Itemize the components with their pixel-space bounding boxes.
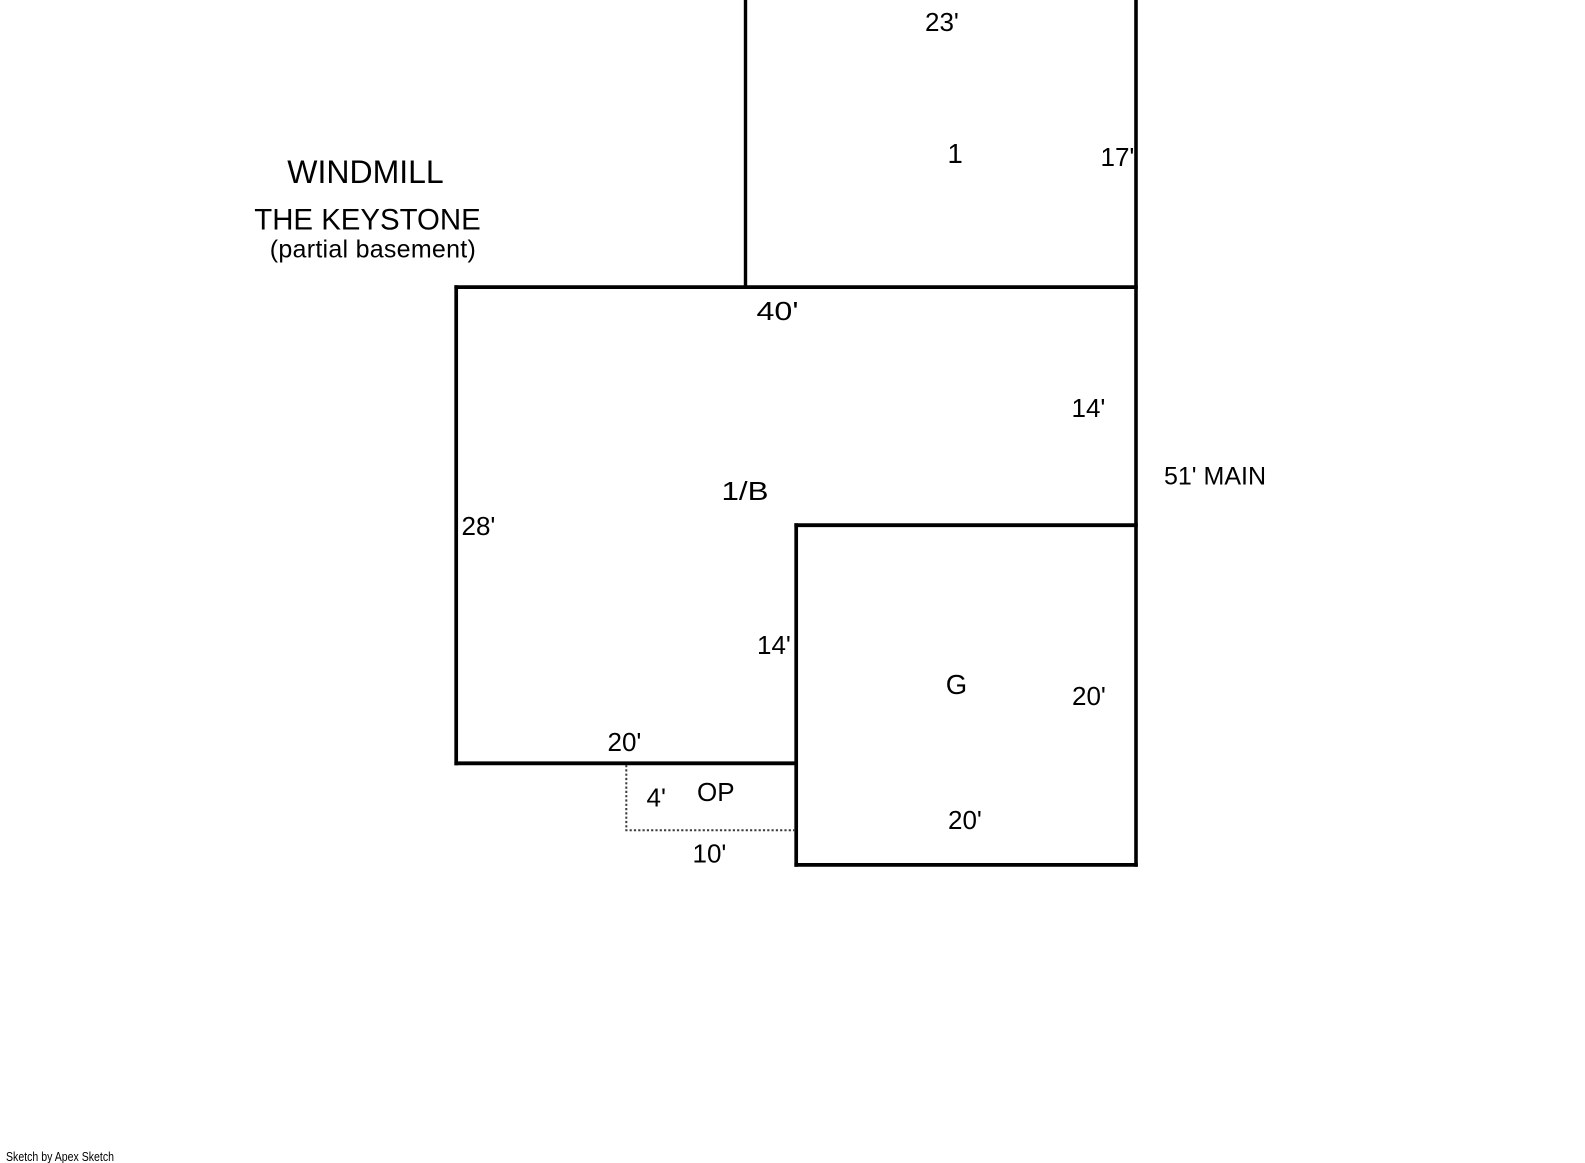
svg-text:20': 20' [948, 805, 982, 835]
svg-text:20': 20' [608, 727, 642, 757]
svg-text:17': 17' [1101, 142, 1135, 172]
svg-text:40': 40' [757, 296, 799, 326]
svg-text:14': 14' [757, 630, 791, 660]
svg-text:28': 28' [462, 511, 496, 541]
svg-text:OP: OP [697, 777, 735, 807]
svg-text:4': 4' [647, 783, 666, 813]
svg-text:1: 1 [948, 138, 963, 169]
svg-text:10': 10' [693, 839, 727, 869]
svg-text:G: G [946, 669, 967, 700]
svg-text:20': 20' [1072, 681, 1106, 711]
svg-text:Sketch by Apex Sketch: Sketch by Apex Sketch [6, 1150, 114, 1163]
svg-text:1/B: 1/B [722, 476, 769, 506]
svg-text:23': 23' [925, 7, 959, 37]
svg-text:WINDMILL: WINDMILL [287, 154, 443, 190]
svg-text:(partial basement): (partial basement) [270, 236, 476, 264]
svg-text:14': 14' [1072, 393, 1106, 423]
svg-text:THE KEYSTONE: THE KEYSTONE [254, 203, 480, 236]
svg-text:51' MAIN: 51' MAIN [1164, 463, 1266, 491]
